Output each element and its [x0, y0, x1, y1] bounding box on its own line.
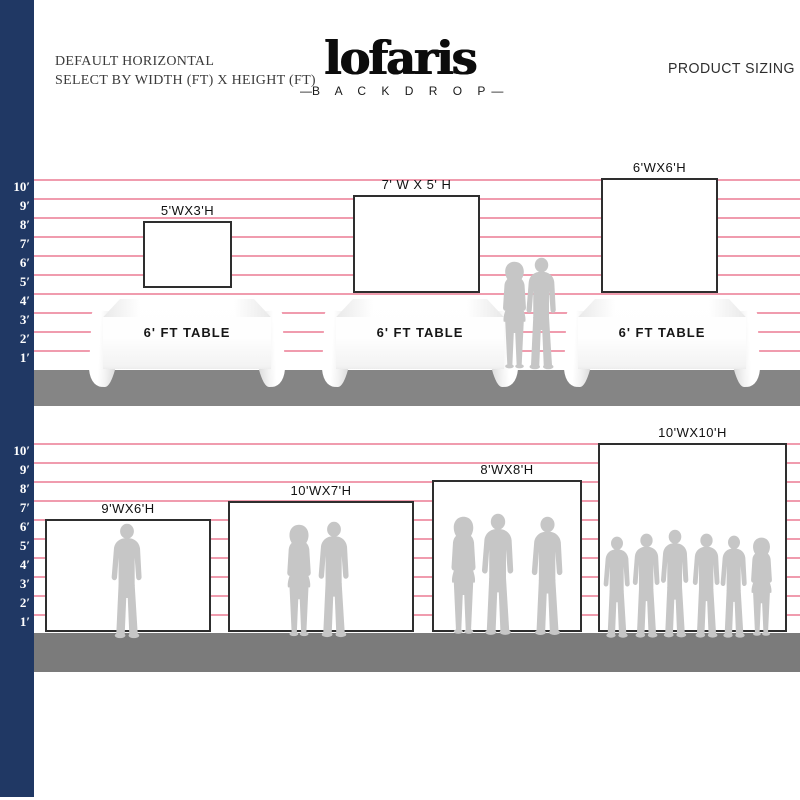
logo-dash-left: —: [300, 84, 312, 98]
ruler-tick-label: 2′: [1, 595, 30, 611]
logo-wordmark: lofaris: [300, 34, 500, 82]
backdrop-7x5: 7' W X 5' H: [353, 195, 480, 293]
size-selection-note: DEFAULT HORIZONTAL SELECT BY WIDTH (FT) …: [55, 52, 316, 90]
backdrop-size-label: 10'WX10'H: [658, 425, 727, 441]
bottom-ruler: 10′ 9′ 8′ 7′ 6′ 5′ 4′ 3′ 2′ 1′: [0, 0, 34, 800]
backdrop-5x3: 5'WX3'H: [143, 221, 232, 288]
ruler-tick-label: 6′: [1, 519, 30, 535]
ruler-tick-label: 3′: [1, 576, 30, 592]
product-sizing-infographic: DEFAULT HORIZONTAL SELECT BY WIDTH (FT) …: [0, 0, 800, 800]
table-size-label: 6' FT TABLE: [562, 325, 762, 340]
logo-dash-right: —: [491, 84, 503, 98]
ruler-tick-label: 10′: [1, 443, 30, 459]
backdrop-6x6: 6'WX6'H: [601, 178, 718, 293]
woman-silhouette: [742, 537, 781, 641]
ruler-tick-label: 1′: [1, 614, 30, 630]
ruler-tick-label: 8′: [1, 481, 30, 497]
banquet-table-2: 6' FT TABLE: [320, 299, 520, 391]
table-size-label: 6' FT TABLE: [320, 325, 520, 340]
man-silhouette: [524, 516, 571, 640]
backdrop-size-label: 6'WX6'H: [633, 160, 686, 176]
backdrop-size-label: 10'WX7'H: [291, 483, 352, 499]
foot-gridline: [34, 293, 800, 295]
man-silhouette: [519, 257, 564, 374]
backdrop-size-label: 8'WX8'H: [480, 462, 533, 478]
backdrop-size-label: 7' W X 5' H: [382, 177, 452, 193]
lofaris-logo: lofaris —B A C K D R O P—: [300, 34, 500, 98]
ruler-tick-label: 5′: [1, 538, 30, 554]
banquet-table-1: 6' FT TABLE: [87, 299, 287, 391]
man-silhouette: [311, 521, 357, 642]
note-line-2: SELECT BY WIDTH (FT) X HEIGHT (FT): [55, 71, 316, 90]
man-silhouette: [104, 523, 150, 643]
backdrop-size-label: 9'WX6'H: [101, 501, 154, 517]
note-line-1: DEFAULT HORIZONTAL: [55, 52, 316, 71]
ruler-tick-label: 9′: [1, 462, 30, 478]
table-size-label: 6' FT TABLE: [87, 325, 287, 340]
banquet-table-3: 6' FT TABLE: [562, 299, 762, 391]
logo-subtext: B A C K D R O P: [312, 84, 491, 98]
backdrop-size-label: 5'WX3'H: [161, 203, 214, 219]
logo-backdrop-line: —B A C K D R O P—: [300, 84, 500, 98]
man-silhouette: [474, 513, 522, 640]
product-sizing-title: PRODUCT SIZING: [668, 60, 795, 77]
ruler-tick-label: 4′: [1, 557, 30, 573]
ruler-tick-label: 7′: [1, 500, 30, 516]
